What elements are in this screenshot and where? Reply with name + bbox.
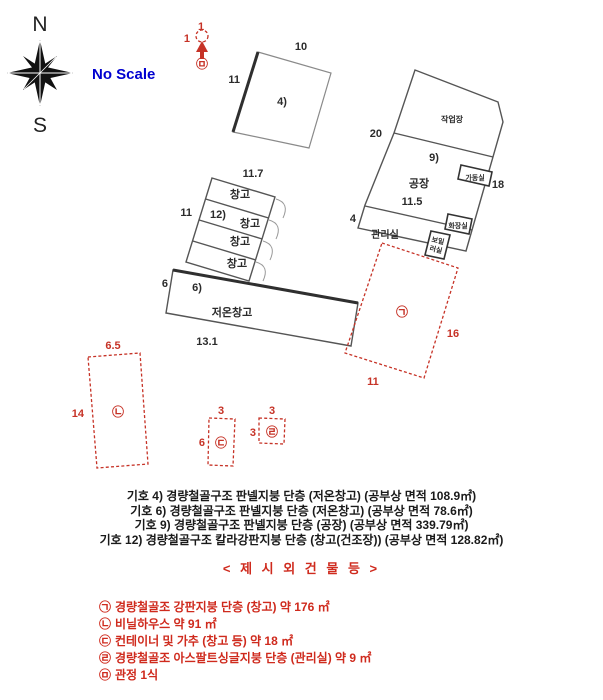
factory-dim-right: 18 [492, 179, 504, 191]
annex-b-dim-left: 14 [72, 408, 85, 420]
well-marker: 1 1 ㉤ [184, 21, 208, 71]
building-4-dim-top: 10 [295, 41, 307, 53]
annex-c-dim-top: 3 [218, 405, 224, 417]
compass-rose [7, 40, 73, 106]
legend-item: ㉠경량철골조 강판지붕 단층 (창고) 약 176 ㎡ [99, 599, 371, 616]
factory-name: 공장 [409, 176, 429, 190]
annex-c-dim-left: 6 [199, 437, 205, 449]
note-line-6: 기호 6) 경량철골구조 판넬지붕 단층 (저온창고) (공부상 면적 78.6… [0, 504, 603, 519]
scale-note: No Scale [92, 66, 155, 83]
stack-dim-top: 11.7 [243, 168, 264, 180]
annex-b-dim-top: 6.5 [105, 340, 120, 352]
building-4-dim-left: 11 [228, 74, 240, 86]
building-12-label: 12) [210, 209, 226, 221]
door-arc [256, 262, 265, 281]
legend-text: 비닐하우스 약 91 ㎡ [115, 617, 217, 631]
building-notes: 기호 4) 경량철골구조 판넬지붕 단층 (저온창고) (공부상 면적 108.… [0, 489, 603, 547]
note-line-12: 기호 12) 경량철골구조 칼라강판지붕 단층 (창고(건조장)) (공부상 면… [0, 533, 603, 548]
annex-b-symbol: ㉡ [112, 404, 124, 419]
building-6-label: 6) [192, 282, 202, 294]
legend-item: ㉣경량철골조 아스팔트싱글지붕 단층 (관리실) 약 9 ㎡ [99, 650, 371, 667]
building-4: 10 11 4) [228, 41, 331, 148]
legend-item: ㉤관정 1식 [99, 667, 371, 684]
annex-a-dim-bottom: 11 [367, 376, 379, 388]
annex-a-shed: ㉠ 16 11 [345, 243, 459, 388]
annex-d-office: 3 3 ㉣ [250, 405, 285, 444]
office-label: 관리실 [371, 228, 399, 241]
legend-symbol: ㉤ [99, 667, 115, 684]
factory-dim-left: 20 [370, 128, 382, 140]
cold-storage-name: 저온창고 [212, 305, 252, 319]
stack-room-2: 창고 [240, 216, 260, 230]
factory-complex: 작업장 20 9) 공장 가동실 18 11.5 4 관리실 화장실 보일 러실 [350, 70, 504, 259]
door-arc [263, 241, 272, 260]
annex-a-symbol: ㉠ [396, 304, 408, 319]
site-plan-canvas: N S No Scale 1 1 ㉤ 10 11 4) [0, 0, 603, 490]
building-9-label: 9) [429, 152, 439, 164]
survey-site-plan: N S No Scale 1 1 ㉤ 10 11 4) [0, 0, 603, 700]
legend-text: 컨테이너 및 가추 (창고 등) 약 18 ㎡ [115, 634, 293, 648]
legend-symbol: ㉢ [99, 633, 115, 650]
office-dim-left: 4 [350, 213, 357, 225]
legend-symbol: ㉣ [99, 650, 115, 667]
legend-symbol: ㉡ [99, 616, 115, 633]
stack-dim-left: 11 [180, 207, 192, 219]
warehouse-stack: 11.7 11 창고 12) 창고 창고 창고 [180, 168, 285, 281]
annex-c-container: 3 6 ㉢ [199, 405, 235, 466]
north-label: N [32, 13, 47, 36]
toilet-label: 화장실 [448, 221, 467, 230]
cold-storage-building: 6 6) 저온창고 13.1 [162, 270, 358, 348]
note-line-4: 기호 4) 경량철골구조 판넬지붕 단층 (저온창고) (공부상 면적 108.… [0, 489, 603, 504]
legend-item: ㉢컨테이너 및 가추 (창고 등) 약 18 ㎡ [99, 633, 371, 650]
annex-c-symbol: ㉢ [215, 435, 227, 450]
annex-b-greenhouse: 6.5 14 ㉡ [72, 340, 148, 468]
factory-dim-width: 11.5 [402, 196, 423, 208]
extra-buildings-legend: ㉠경량철골조 강판지붕 단층 (창고) 약 176 ㎡ ㉡비닐하우스 약 91 … [99, 599, 371, 684]
arrow-up-icon [196, 41, 208, 52]
cold-dim-bottom: 13.1 [196, 336, 217, 348]
south-label: S [33, 114, 47, 137]
annex-d-dim-left: 3 [250, 427, 256, 439]
stack-room-1: 창고 [230, 187, 250, 201]
cold-dim-left: 6 [162, 278, 168, 290]
annex-d-dim-top: 3 [269, 405, 275, 417]
legend-text: 경량철골조 아스팔트싱글지붕 단층 (관리실) 약 9 ㎡ [115, 651, 371, 665]
legend-text: 관정 1식 [115, 668, 158, 682]
building-4-label: 4) [277, 96, 287, 108]
note-line-9: 기호 9) 경량철골구조 판넬지붕 단층 (공장) (공부상 면적 339.79… [0, 518, 603, 533]
machine-room-label: 가동실 [465, 173, 484, 182]
legend-item: ㉡비닐하우스 약 91 ㎡ [99, 616, 371, 633]
well-dim-left: 1 [184, 33, 190, 45]
workshop-label: 작업장 [441, 114, 464, 124]
stack-room-4: 창고 [227, 256, 247, 270]
door-arc [269, 220, 278, 239]
annex-d-symbol: ㉣ [266, 424, 278, 439]
stack-room-3: 창고 [230, 234, 250, 248]
annex-a-dim-right: 16 [447, 328, 459, 340]
legend-text: 경량철골조 강판지붕 단층 (창고) 약 176 ㎡ [115, 600, 330, 614]
well-dim-top: 1 [198, 21, 204, 33]
door-arc [276, 199, 285, 218]
well-symbol: ㉤ [196, 56, 208, 71]
extra-buildings-heading: < 제 시 외 건 물 등 > [0, 558, 603, 577]
legend-symbol: ㉠ [99, 599, 115, 616]
